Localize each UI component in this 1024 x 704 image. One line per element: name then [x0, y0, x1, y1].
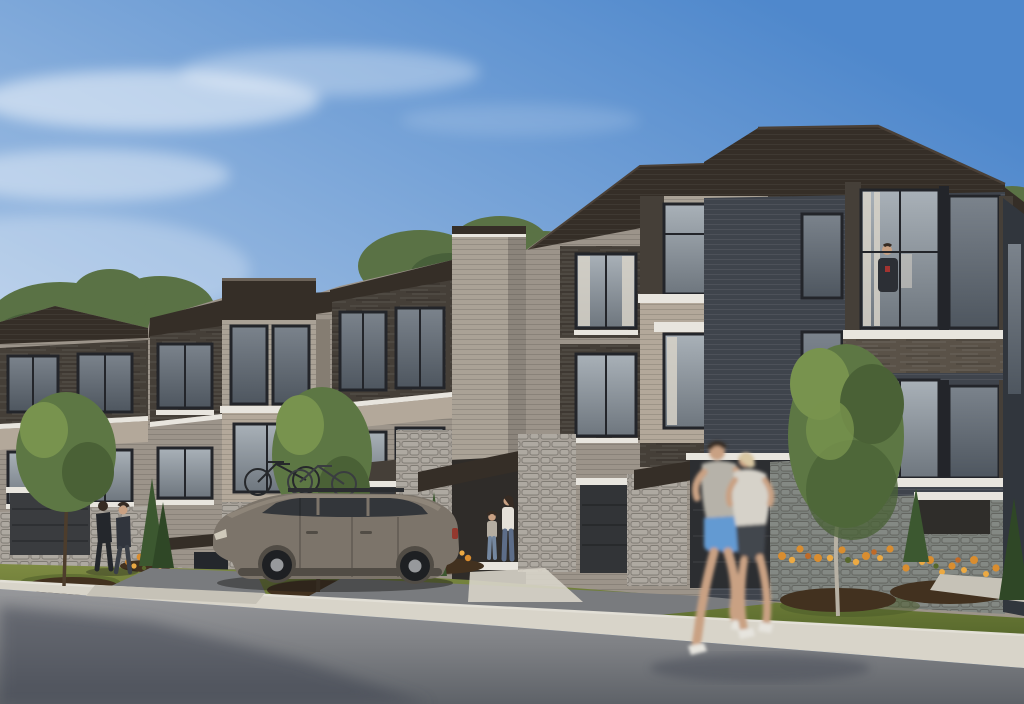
upper-window: [574, 254, 638, 335]
jogger-shadow: [650, 654, 870, 682]
rendering-canvas: [0, 0, 1024, 704]
corner-bay-upper: [843, 182, 1013, 373]
brick-stair-tower: [452, 226, 526, 480]
mid-window: [156, 448, 214, 505]
roof-rack: [288, 488, 404, 492]
mid-window: [574, 354, 638, 443]
upper-window: [156, 344, 214, 415]
planter-box: [918, 500, 990, 534]
taillight: [452, 528, 458, 539]
car-windows: [262, 498, 428, 517]
townhome-street-rendering: [0, 0, 1024, 704]
